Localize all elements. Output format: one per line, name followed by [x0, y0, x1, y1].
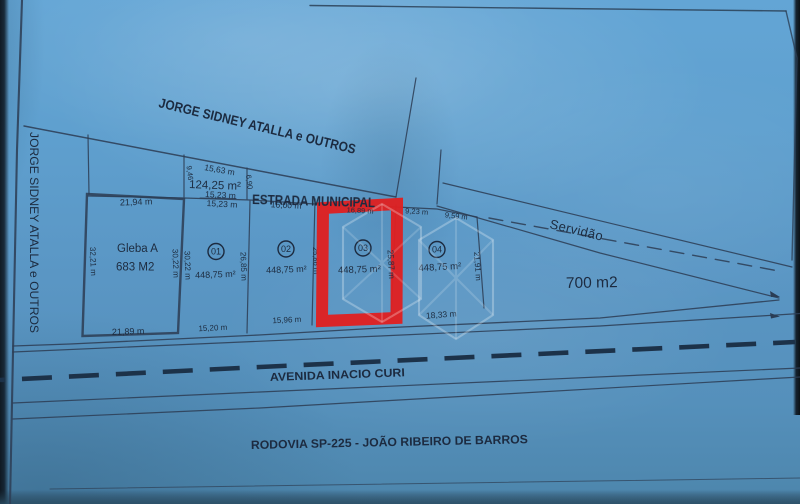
svg-text:21,89 m: 21,89 m — [112, 326, 145, 337]
svg-text:32,21 m: 32,21 m — [88, 247, 98, 277]
svg-text:700 m2: 700 m2 — [566, 274, 618, 292]
svg-text:02: 02 — [281, 244, 291, 254]
svg-text:26,85 m: 26,85 m — [239, 252, 249, 282]
svg-text:448,75 m²: 448,75 m² — [266, 264, 307, 275]
svg-text:15,96 m: 15,96 m — [272, 315, 302, 326]
svg-text:16,89 m: 16,89 m — [346, 205, 374, 215]
svg-text:18,33 m: 18,33 m — [426, 308, 457, 320]
svg-text:6,90: 6,90 — [244, 174, 255, 190]
svg-text:25,87 m: 25,87 m — [386, 250, 397, 280]
svg-text:15,23 m: 15,23 m — [206, 198, 237, 210]
svg-text:30,22 m: 30,22 m — [183, 251, 193, 281]
svg-text:9,23 m: 9,23 m — [405, 206, 429, 217]
svg-text:JORGE SIDNEY ATALLA e OUTROS: JORGE SIDNEY ATALLA e OUTROS — [27, 132, 41, 333]
svg-text:448,75 m²: 448,75 m² — [195, 269, 236, 280]
svg-text:04: 04 — [432, 245, 442, 255]
svg-text:15,20 m: 15,20 m — [198, 323, 228, 334]
svg-text:21,94 m: 21,94 m — [120, 196, 153, 207]
svg-text:Gleba A: Gleba A — [117, 243, 158, 255]
svg-text:01: 01 — [211, 247, 221, 257]
svg-text:9,46: 9,46 — [185, 165, 196, 181]
svg-text:683 M2: 683 M2 — [116, 262, 154, 274]
svg-text:30,22 m: 30,22 m — [171, 249, 181, 279]
